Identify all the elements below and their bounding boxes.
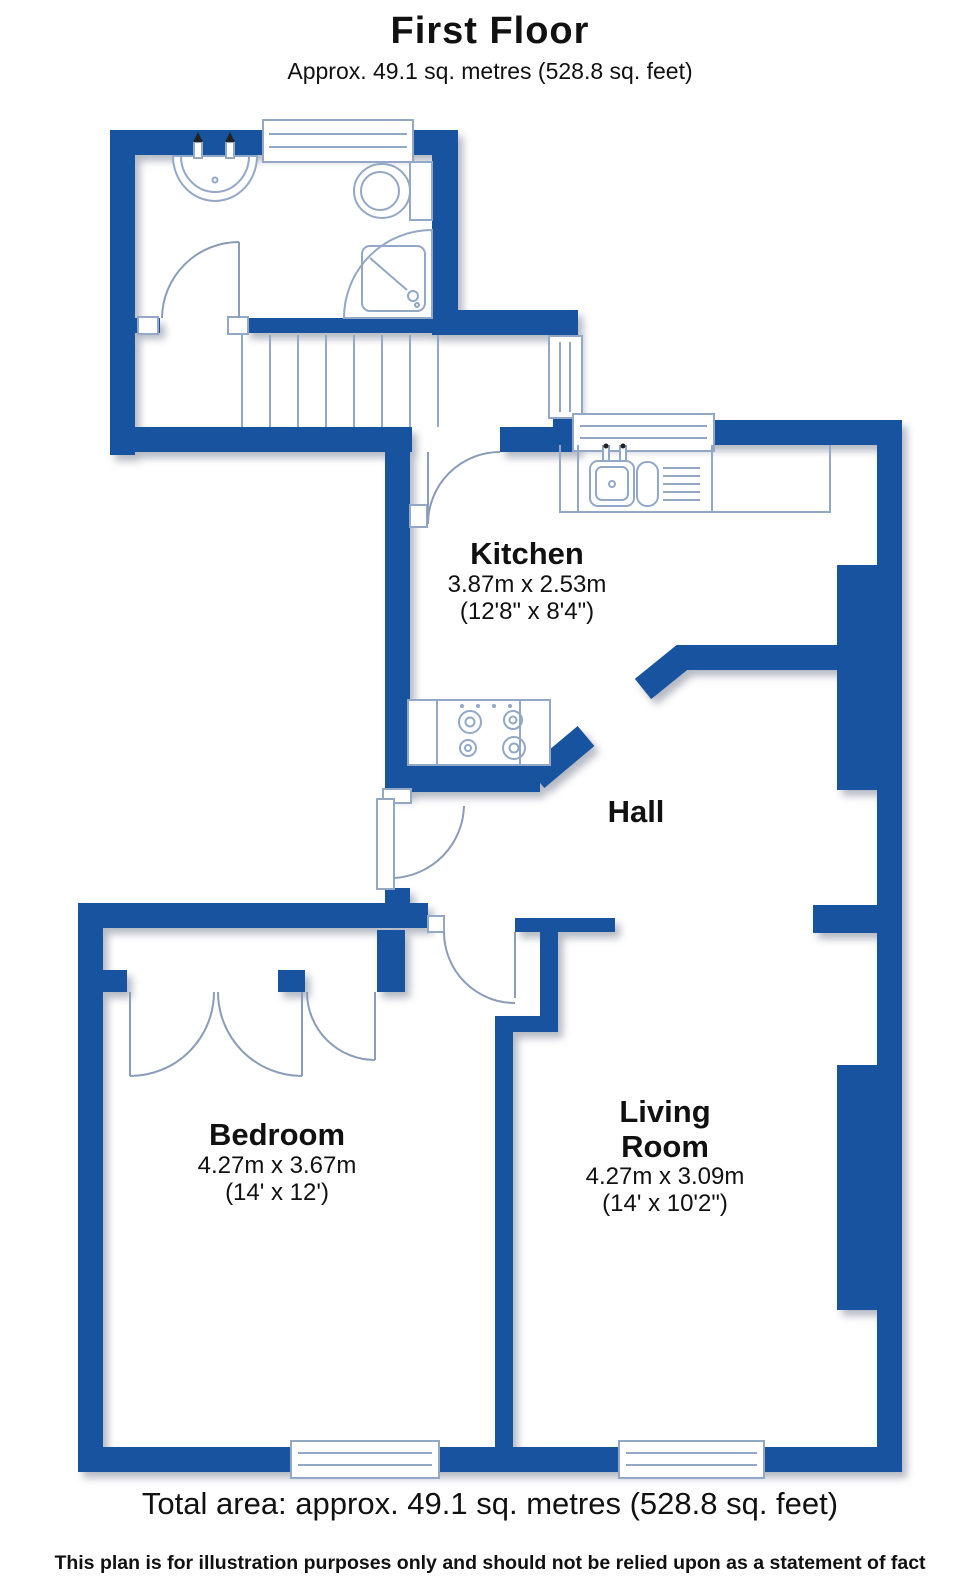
stairs <box>242 335 438 427</box>
living-room-dims-imperial: (14' x 10'2") <box>575 1191 755 1218</box>
toilet <box>354 162 432 220</box>
page-subtitle: Approx. 49.1 sq. metres (528.8 sq. feet) <box>0 58 980 85</box>
bedroom-dims-imperial: (14' x 12') <box>198 1180 357 1207</box>
bedroom-door <box>428 916 515 1003</box>
hall-name: Hall <box>608 795 665 830</box>
bedroom-label: Bedroom 4.27m x 3.67m (14' x 12') <box>198 1118 357 1206</box>
shower <box>344 230 432 318</box>
living-room-name: Living Room <box>575 1095 755 1164</box>
hall-label: Hall <box>608 795 665 830</box>
bathroom-window <box>263 120 413 162</box>
drainer-lines <box>663 468 700 500</box>
kitchen-name: Kitchen <box>448 537 607 572</box>
kitchen-label: Kitchen 3.87m x 2.53m (12'8" x 8'4") <box>448 537 607 625</box>
living-room-window <box>619 1441 764 1478</box>
wardrobe-double-doors <box>130 992 302 1076</box>
living-room-dims-metric: 4.27m x 3.09m <box>575 1164 755 1191</box>
kitchen-dims-metric: 3.87m x 2.53m <box>448 572 607 599</box>
hob <box>408 700 550 765</box>
total-area-text: Total area: approx. 49.1 sq. metres (528… <box>0 1486 980 1522</box>
bedroom-dims-metric: 4.27m x 3.67m <box>198 1153 357 1180</box>
page-title: First Floor <box>0 10 980 53</box>
floorplan-drawing <box>0 0 980 1593</box>
bedroom-name: Bedroom <box>198 1118 357 1153</box>
wardrobe-single-door <box>307 992 375 1060</box>
kitchen-sink <box>590 444 700 507</box>
bathroom-door <box>138 242 248 334</box>
entrance-door <box>377 789 464 889</box>
kitchen-window <box>573 414 714 451</box>
disclaimer-text: This plan is for illustration purposes o… <box>0 1552 980 1575</box>
living-room-label: Living Room 4.27m x 3.09m (14' x 10'2") <box>575 1095 755 1218</box>
kitchen-door <box>410 452 500 527</box>
bedroom-window <box>291 1441 439 1478</box>
walls-layer <box>78 130 902 1472</box>
landing-side-window <box>549 336 582 418</box>
kitchen-dims-imperial: (12'8" x 8'4") <box>448 599 607 626</box>
